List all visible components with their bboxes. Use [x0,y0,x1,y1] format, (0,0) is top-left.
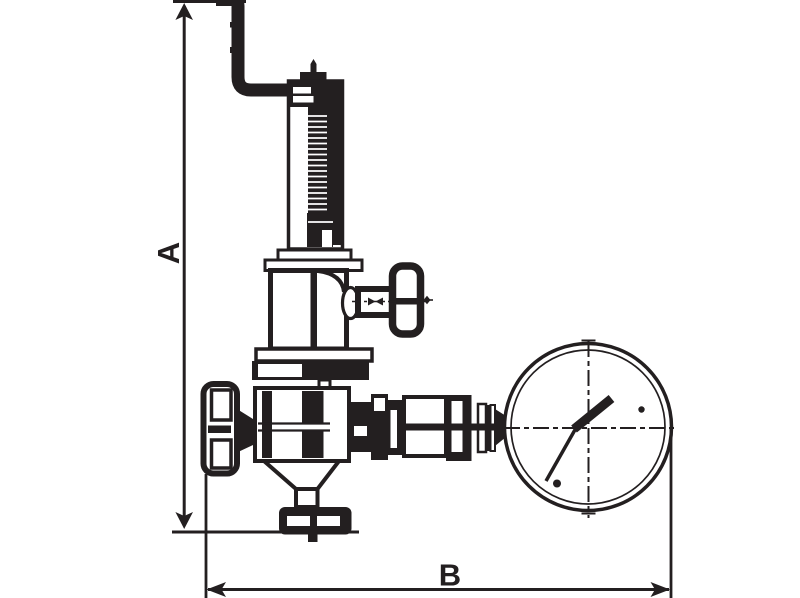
svg-text:B: B [439,558,461,593]
svg-text:A: A [151,242,186,264]
